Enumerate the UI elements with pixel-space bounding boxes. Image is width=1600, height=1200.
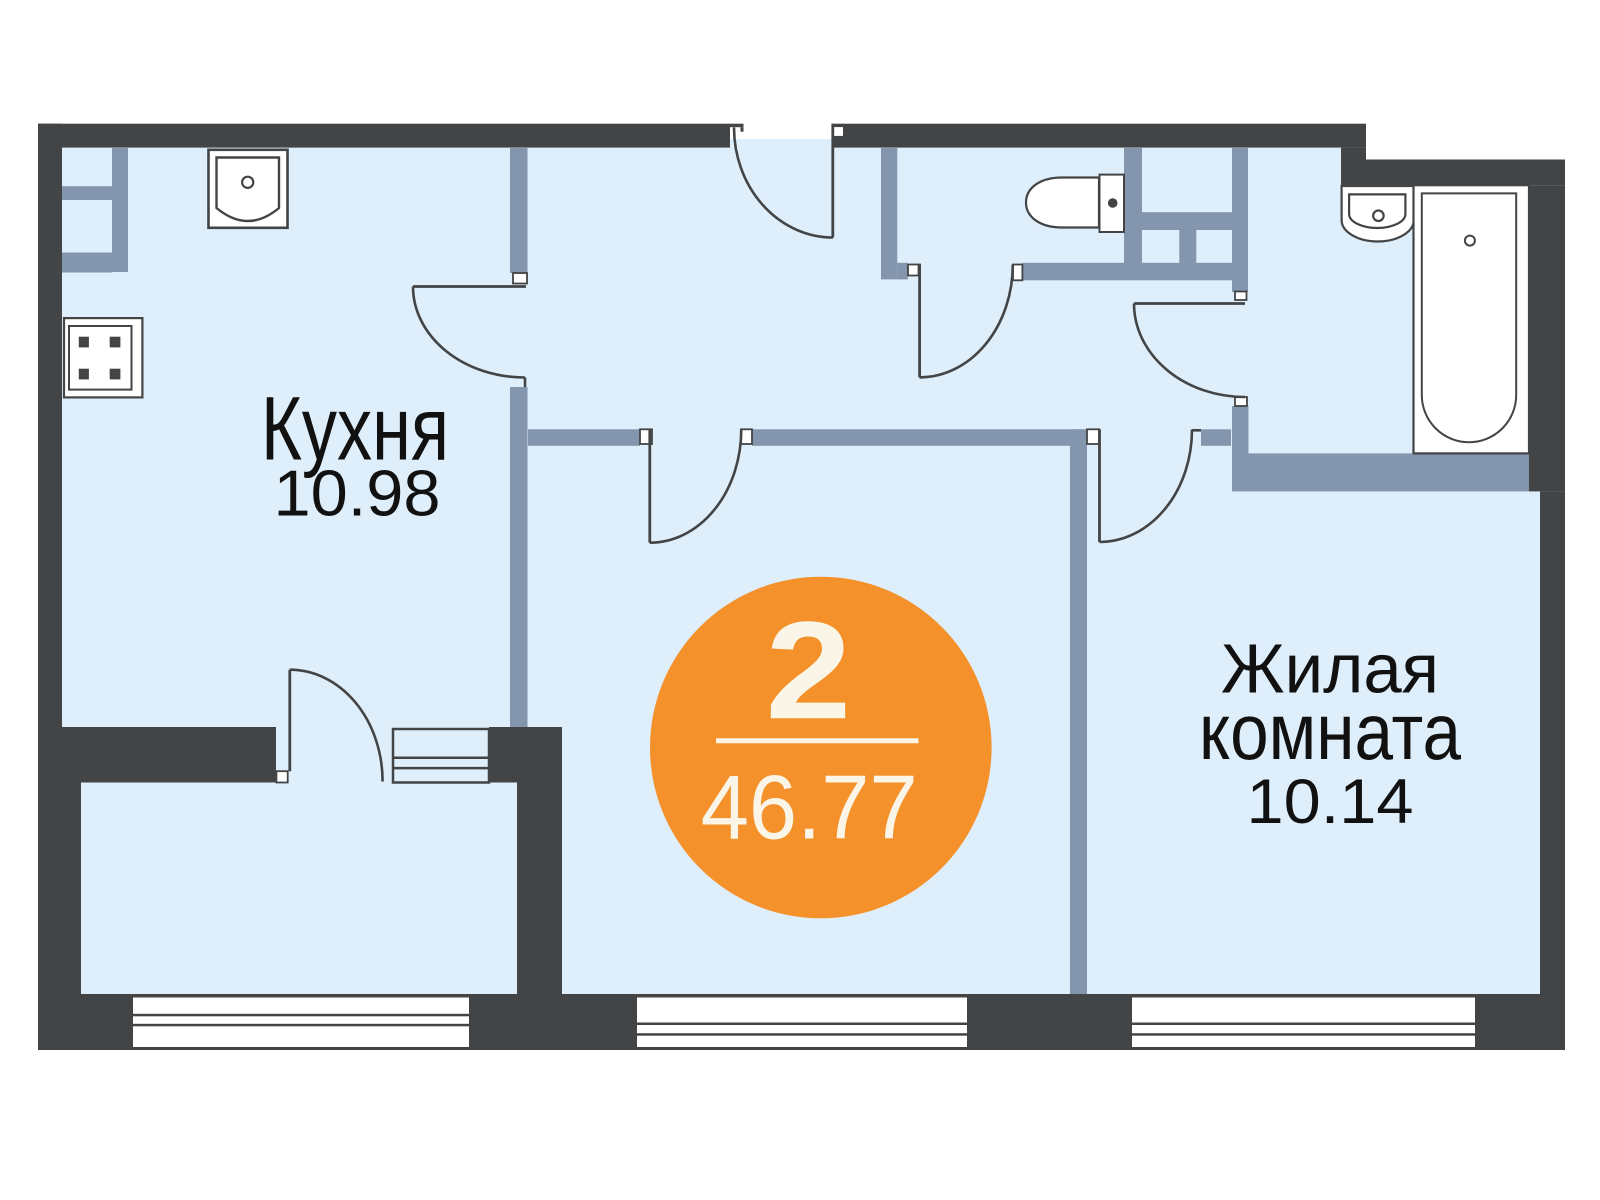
svg-text:46.77: 46.77 — [701, 757, 918, 858]
svg-text:2: 2 — [765, 593, 851, 748]
svg-text:10.98: 10.98 — [274, 458, 441, 530]
svg-text:10.14: 10.14 — [1247, 767, 1414, 837]
svg-text:комната: комната — [1199, 687, 1461, 776]
